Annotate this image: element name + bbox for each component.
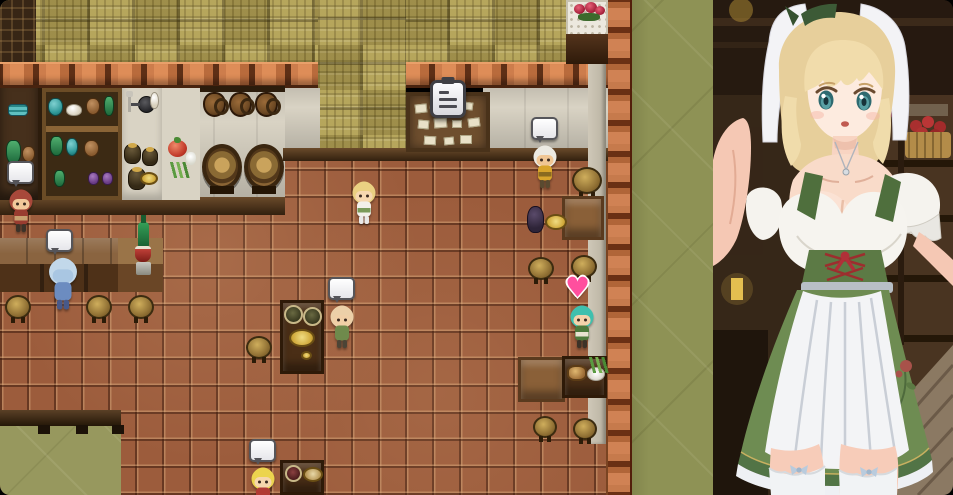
tomato: [168, 140, 187, 157]
wine-barrel: [202, 144, 242, 190]
stew-bowl: [545, 214, 567, 230]
stool: [528, 257, 554, 280]
game-window: ♥: [0, 0, 953, 495]
board-note: [444, 137, 455, 146]
side-table: [562, 196, 604, 240]
wine-barrel: [244, 144, 284, 190]
npc-sprite: [249, 466, 277, 495]
npc-sprite: [568, 304, 596, 350]
npc-waitress-sprite[interactable]: [350, 180, 378, 226]
speech-bubble-icon: [531, 117, 558, 140]
green-floor-lower-left: [0, 424, 121, 495]
food-table: [562, 356, 607, 398]
npc-bald-patron[interactable]: [328, 304, 356, 350]
woven-wall-recess: [318, 0, 406, 152]
grey-mug: [136, 262, 151, 275]
stool: [573, 418, 597, 440]
gold-plate: [140, 172, 158, 185]
lower-left-table-edge: [0, 410, 121, 426]
green-flask: [54, 170, 65, 187]
board-note: [434, 118, 448, 129]
bread-basket: [567, 365, 587, 381]
hanging-jug: [255, 92, 278, 117]
gold-cup: [301, 351, 312, 360]
speech-bubble-icon: [249, 439, 276, 462]
green-vase: [50, 136, 63, 156]
board-note: [418, 120, 430, 130]
rose-vase-table: [566, 0, 608, 36]
speech-bubble-icon: [328, 277, 355, 300]
stool: [86, 295, 112, 319]
stool: [128, 295, 154, 319]
waitress-portrait-panel: [713, 0, 953, 495]
dark-jug: [527, 206, 544, 233]
npc-blue-hooded-patron[interactable]: [46, 256, 74, 302]
teal-jar: [48, 98, 63, 116]
pendant: [843, 169, 849, 175]
npc-teal-haired-girl[interactable]: ♥: [568, 304, 596, 350]
green-out-of-bounds: [632, 0, 715, 495]
game-viewport[interactable]: ♥: [0, 0, 713, 495]
npc-sprite: [46, 256, 80, 312]
plum-jar: [102, 172, 113, 185]
wine-bottle: [138, 222, 149, 248]
board-note: [424, 136, 436, 146]
bottom-table: [280, 460, 324, 495]
gold-platter: [289, 329, 315, 347]
hanging-jug: [229, 92, 252, 117]
rose-leaves: [578, 13, 600, 21]
heart-icon: ♥: [565, 274, 590, 302]
white-wall: [283, 88, 320, 152]
board-note: [460, 135, 472, 144]
green-bottle: [104, 96, 114, 116]
vegetable-stand: [162, 88, 200, 200]
npc-sprite: [531, 144, 559, 190]
cream-bowl: [303, 467, 323, 482]
plum-jar: [88, 172, 99, 185]
white-bottle: [150, 92, 159, 109]
woven-wall-top: [0, 0, 608, 64]
stool: [533, 416, 557, 438]
table-leg: [112, 425, 124, 434]
brown-jug: [84, 140, 99, 157]
npc-sprite: [350, 180, 378, 226]
clipboard-line: [439, 91, 449, 94]
board-note: [467, 117, 480, 127]
red-goblet: [135, 246, 151, 262]
white-pot: [66, 104, 82, 116]
dark-wall-corner: [0, 0, 36, 64]
rose-table-front: [566, 34, 608, 64]
dining-table: [518, 357, 565, 402]
spatula: [128, 96, 131, 112]
wine-jug: [285, 465, 302, 482]
jar-shelf: [42, 88, 122, 200]
stacked-keg: [124, 144, 141, 164]
table-leg: [38, 425, 50, 434]
barrel-table: [280, 300, 324, 374]
stool: [572, 167, 602, 194]
npc-blonde-child[interactable]: [249, 466, 277, 495]
radish: [186, 152, 196, 165]
table-greens: [589, 357, 611, 373]
clipboard-line: [439, 98, 457, 101]
clay-pot: [86, 98, 100, 115]
stool: [5, 295, 31, 319]
brown-pot: [22, 146, 35, 162]
quest-board-icon[interactable]: [430, 80, 466, 118]
stacked-keg: [142, 148, 158, 166]
brick-cap-row: [0, 62, 608, 88]
kitchen-panel: [122, 88, 162, 200]
teal-plate-stack: [8, 104, 28, 116]
teal-vase: [66, 138, 78, 156]
table-leg: [76, 425, 88, 434]
waitress-portrait: [713, 0, 953, 495]
speech-bubble-icon: [46, 229, 73, 252]
stool: [246, 336, 272, 359]
npc-sprite: [328, 304, 356, 350]
hanging-jug: [203, 92, 226, 117]
board-note: [415, 103, 428, 113]
speech-bubble-icon: [7, 161, 34, 184]
table-keg: [284, 305, 303, 324]
npc-sprite: [7, 188, 35, 234]
table-keg: [303, 307, 322, 326]
brick-wall-column: [606, 0, 632, 495]
clipboard-line: [439, 105, 457, 108]
board-note: [452, 120, 462, 128]
npc-turbaned-merchant[interactable]: [531, 144, 559, 190]
shelf-board: [46, 126, 118, 132]
npc-red-haired-patron[interactable]: [7, 188, 35, 234]
